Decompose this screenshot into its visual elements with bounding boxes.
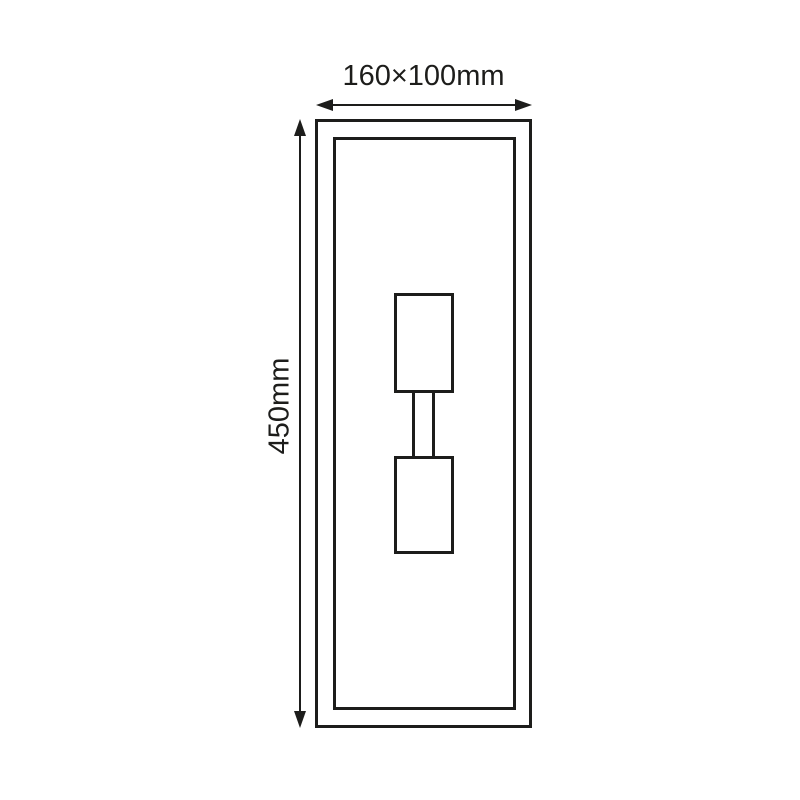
fixture-dimension-diagram: 160×100mm 450mm	[0, 0, 800, 800]
width-dimension-label: 160×100mm	[315, 62, 532, 91]
height-dimension-line	[299, 131, 301, 716]
arrowhead-down-icon	[294, 711, 306, 728]
arrowhead-left-icon	[316, 99, 333, 111]
width-dimension-line	[328, 104, 522, 106]
lamp-connector-bar	[412, 392, 435, 456]
lamp-socket-bottom	[394, 456, 454, 554]
arrowhead-right-icon	[515, 99, 532, 111]
arrowhead-up-icon	[294, 119, 306, 136]
height-dimension-label: 450mm	[266, 358, 295, 455]
lamp-socket-top	[394, 293, 454, 393]
